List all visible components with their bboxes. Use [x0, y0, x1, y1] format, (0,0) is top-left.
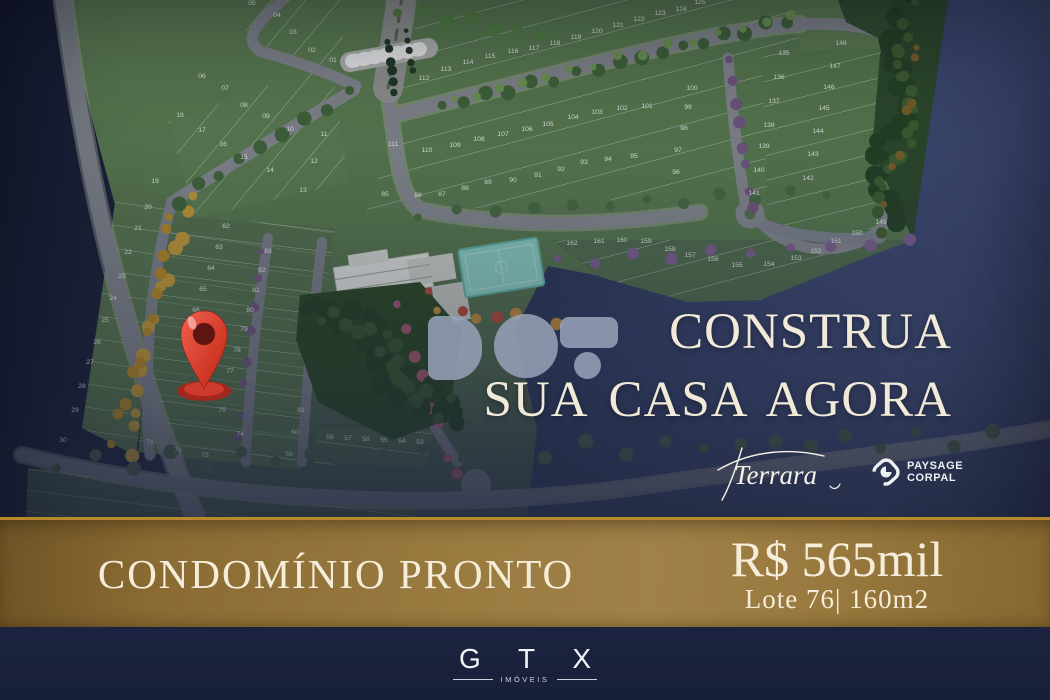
price-banner: CONDOMÍNIO PRONTO R$ 565mil Lote 76| 160…: [0, 517, 1050, 627]
dot-logo-d-shape: [428, 316, 482, 380]
headline-line1: CONSTRUA: [484, 298, 952, 366]
site-map: 0102030405060708091011121314151617181920…: [0, 0, 1050, 517]
price-text: R$ 565mil: [731, 534, 944, 584]
map-tint-overlay: [0, 0, 1050, 517]
terrara-wordmark: Terrara: [734, 460, 817, 490]
real-estate-poster: 0102030405060708091011121314151617181920…: [0, 0, 1050, 700]
paysage-corpal-icon: [872, 458, 900, 486]
headline: CONSTRUA SUA CASA AGORA: [484, 298, 952, 434]
headline-line2: SUA CASA AGORA: [484, 366, 952, 434]
paysage-line1: PAYSAGE: [907, 460, 963, 472]
site-plan-illustration: 0102030405060708091011121314151617181920…: [0, 0, 1050, 517]
lot-info-text: Lote 76| 160m2: [745, 584, 929, 614]
terrara-script-logo: Terrara: [712, 444, 862, 507]
status-text: CONDOMÍNIO PRONTO: [0, 520, 672, 627]
price-block: R$ 565mil Lote 76| 160m2: [672, 520, 1002, 627]
paysage-corpal-logo: PAYSAGE CORPAL: [872, 458, 963, 486]
gtx-division: IMÓVEIS: [453, 675, 598, 684]
gtx-brand: G T X: [444, 644, 606, 674]
footer: G T X IMÓVEIS: [0, 627, 1050, 700]
paysage-line2: CORPAL: [907, 472, 963, 484]
